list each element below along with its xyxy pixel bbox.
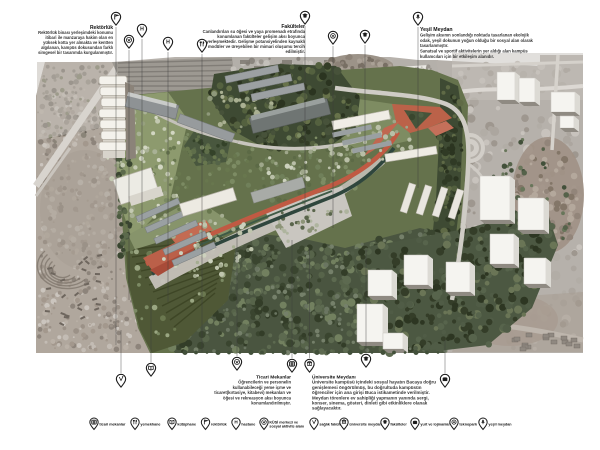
svg-text:edilmiştir.: edilmiştir. xyxy=(285,49,305,54)
svg-text:teknopark: teknopark xyxy=(459,422,478,426)
svg-text:KÜSİ merkezi ve: KÜSİ merkezi ve xyxy=(269,419,298,424)
svg-text:Sanatsal ve sportif aktivitele: Sanatsal ve sportif aktivitelerin yer al… xyxy=(420,49,528,54)
svg-text:hastane: hastane xyxy=(241,422,255,426)
svg-text:sağlayacaktır.: sağlayacaktır. xyxy=(312,406,342,411)
svg-text:odak, yeşil dokunun yoğun oldu: odak, yeşil dokunun yoğun olduğu bir sos… xyxy=(420,38,534,43)
svg-text:üniversite meydanı: üniversite meydanı xyxy=(349,422,382,426)
svg-text:tasarlanmıştır.: tasarlanmıştır. xyxy=(420,43,448,48)
svg-text:Üniversite kampüsü içindeki so: Üniversite kampüsü içindeki sosyal hayat… xyxy=(312,379,436,385)
svg-text:konumlandırılmıştır.: konumlandırılmıştır. xyxy=(251,401,291,406)
svg-text:yemekhane: yemekhane xyxy=(140,422,160,426)
svg-text:fakülteler: fakülteler xyxy=(390,422,407,426)
svg-text:H: H xyxy=(166,40,170,46)
svg-text:ticari mekanlar: ticari mekanlar xyxy=(99,422,126,426)
svg-text:Gelişim aksının sonlandığı nok: Gelişim aksının sonlandığı noktada tasar… xyxy=(420,32,530,37)
svg-text:simgesel bir tasarımda kurgula: simgesel bir tasarımda kurgulanmıştır. xyxy=(38,50,113,55)
svg-text:sosyal aktivite alanı: sosyal aktivite alanı xyxy=(269,425,304,429)
svg-text:yurt ve lojmanlar: yurt ve lojmanlar xyxy=(420,422,450,426)
svg-text:kütüphane: kütüphane xyxy=(177,422,196,426)
svg-text:rektörlük: rektörlük xyxy=(211,422,228,426)
svg-text:yeşil meydan: yeşil meydan xyxy=(488,422,512,426)
svg-text:kullanıcıları için bir etkileş: kullanıcıları için bir etkileşim alanıdı… xyxy=(420,54,494,59)
svg-text:H: H xyxy=(140,27,144,33)
